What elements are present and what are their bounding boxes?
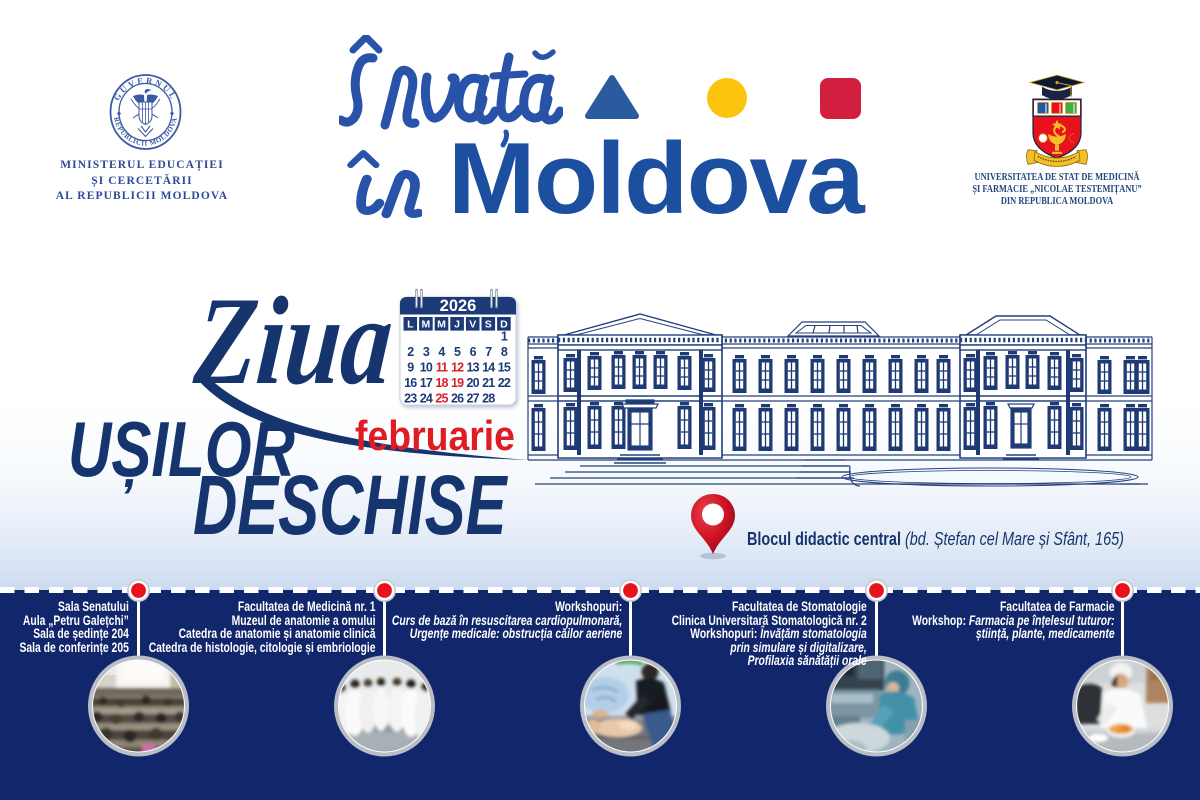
svg-text:2026: 2026 xyxy=(440,297,477,315)
svg-text:M: M xyxy=(422,319,431,331)
svg-text:14: 14 xyxy=(482,361,495,375)
svg-text:27: 27 xyxy=(467,392,480,406)
svg-text:23: 23 xyxy=(404,392,417,406)
svg-text:L: L xyxy=(407,319,414,331)
svg-text:10: 10 xyxy=(420,361,433,375)
svg-text:2: 2 xyxy=(407,345,414,359)
svg-text:M: M xyxy=(437,319,446,331)
svg-text:S: S xyxy=(485,319,492,331)
svg-text:16: 16 xyxy=(404,376,417,390)
svg-text:8: 8 xyxy=(501,345,508,359)
svg-text:GUVERNUL: GUVERNUL xyxy=(111,75,179,102)
svg-text:J: J xyxy=(454,319,460,331)
svg-text:24: 24 xyxy=(420,392,433,406)
svg-text:28: 28 xyxy=(482,392,495,406)
svg-text:18: 18 xyxy=(435,376,448,390)
svg-text:15: 15 xyxy=(498,361,511,375)
svg-text:17: 17 xyxy=(420,376,433,390)
svg-text:19: 19 xyxy=(451,376,464,390)
svg-text:26: 26 xyxy=(451,392,464,406)
svg-text:4: 4 xyxy=(438,345,445,359)
svg-text:7: 7 xyxy=(485,345,492,359)
svg-text:25: 25 xyxy=(435,392,448,406)
svg-text:1: 1 xyxy=(501,330,508,344)
svg-text:13: 13 xyxy=(467,361,480,375)
svg-text:22: 22 xyxy=(498,376,511,390)
svg-text:11: 11 xyxy=(436,361,448,375)
svg-text:5: 5 xyxy=(454,345,461,359)
svg-text:12: 12 xyxy=(451,361,464,375)
svg-text:3: 3 xyxy=(423,345,430,359)
svg-text:6: 6 xyxy=(470,345,477,359)
svg-text:21: 21 xyxy=(482,376,495,390)
svg-text:V: V xyxy=(469,319,476,331)
svg-text:9: 9 xyxy=(407,361,414,375)
svg-text:20: 20 xyxy=(467,376,480,390)
